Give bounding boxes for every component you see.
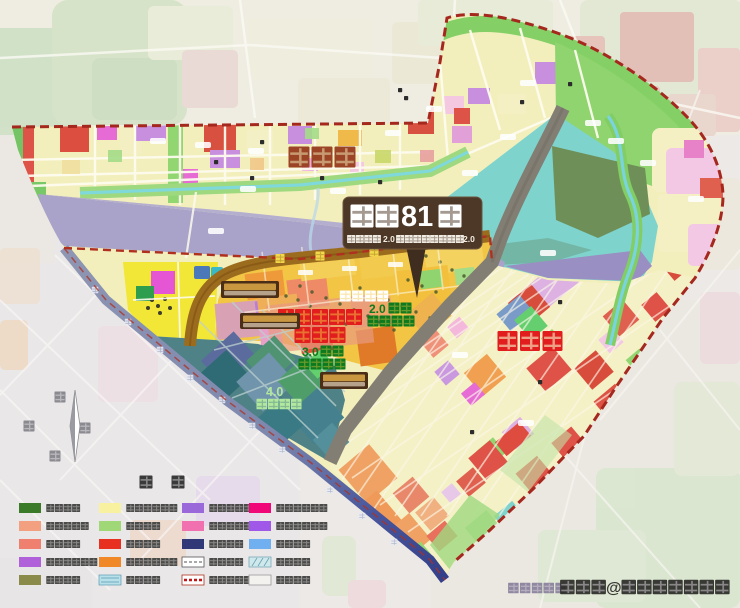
- svg-text:4.0: 4.0: [266, 385, 283, 399]
- svg-text:2.0: 2.0: [383, 234, 395, 244]
- svg-text:@: @: [606, 580, 622, 597]
- svg-text:81: 81: [401, 201, 433, 233]
- svg-text:2.0: 2.0: [369, 302, 386, 316]
- svg-text:2.0: 2.0: [463, 234, 475, 244]
- svg-text:3.0: 3.0: [302, 345, 319, 359]
